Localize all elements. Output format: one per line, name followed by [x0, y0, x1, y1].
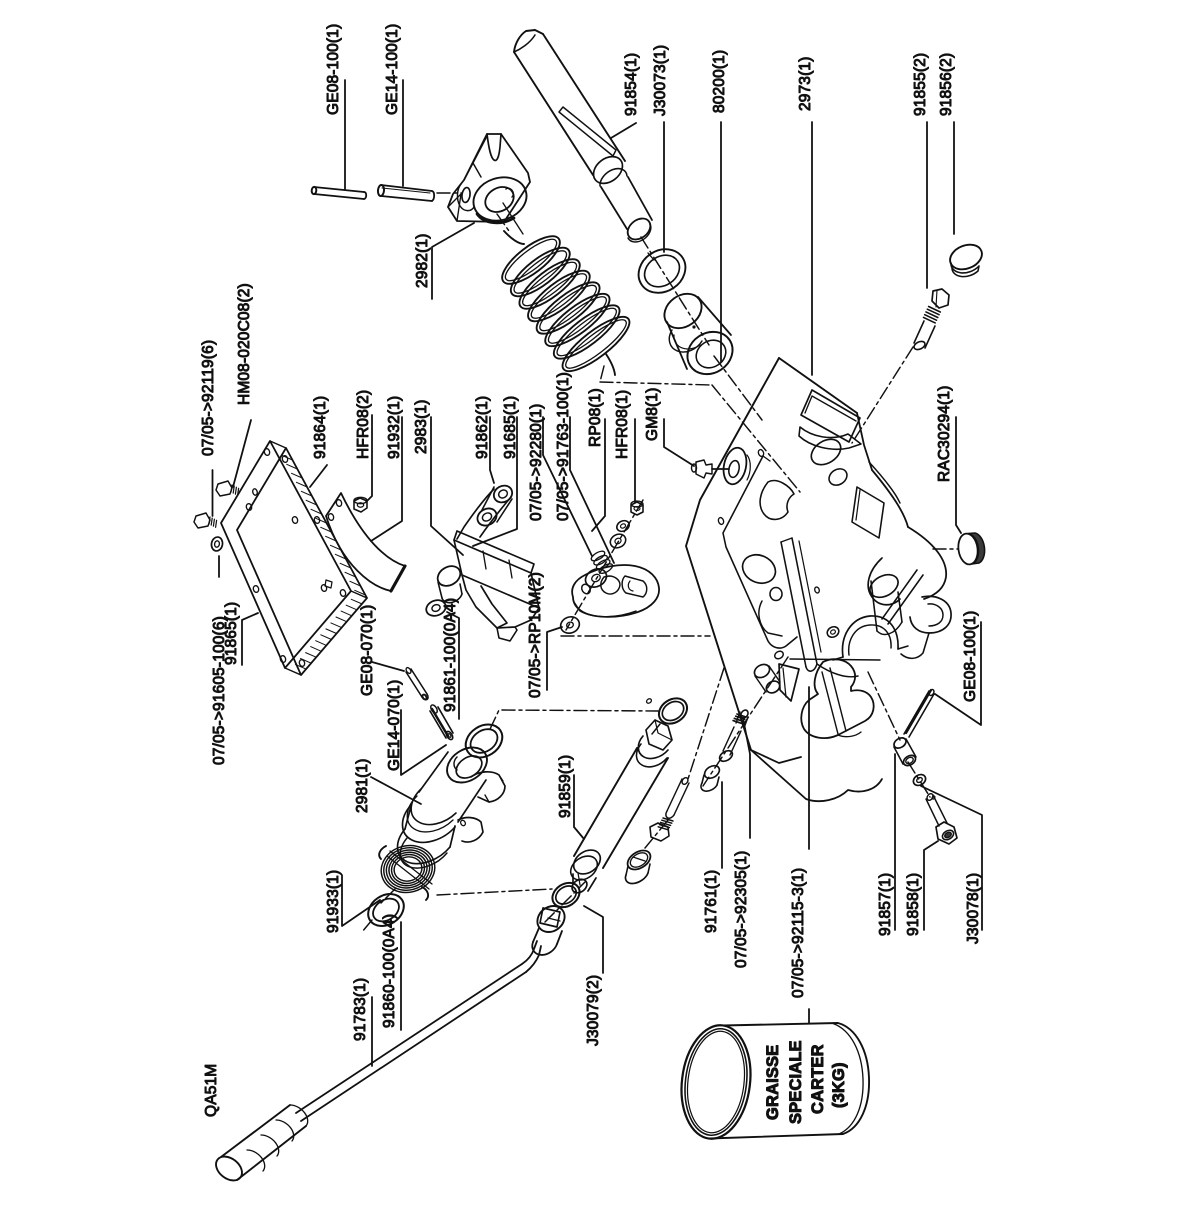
- svg-text:91854(1): 91854(1): [623, 53, 640, 116]
- svg-text:RAC30294(1): RAC30294(1): [936, 386, 953, 482]
- svg-text:91857(1): 91857(1): [877, 873, 894, 936]
- svg-text:GRAISSE: GRAISSE: [764, 1045, 782, 1120]
- svg-text:91859(1): 91859(1): [557, 755, 574, 818]
- svg-text:91761(1): 91761(1): [703, 870, 720, 933]
- svg-text:GM8(1): GM8(1): [644, 388, 661, 441]
- svg-text:91856(2): 91856(2): [938, 53, 955, 116]
- svg-text:J30073(1): J30073(1): [652, 45, 669, 116]
- svg-text:91860-100(0A4): 91860-100(0A4): [381, 914, 398, 1028]
- svg-text:HFR08(2): HFR08(2): [355, 390, 372, 459]
- svg-text:91783(1): 91783(1): [352, 978, 369, 1041]
- svg-text:91861-100(0A4): 91861-100(0A4): [442, 598, 459, 712]
- svg-text:07/05->92119(6): 07/05->92119(6): [200, 340, 217, 456]
- svg-text:91862(1): 91862(1): [474, 396, 491, 459]
- svg-text:91864(1): 91864(1): [312, 396, 329, 459]
- svg-text:SPECIALE: SPECIALE: [787, 1040, 805, 1124]
- svg-text:91932(1): 91932(1): [386, 396, 403, 459]
- svg-text:2981(1): 2981(1): [354, 759, 371, 813]
- svg-text:91855(2): 91855(2): [912, 53, 929, 116]
- svg-text:2983(1): 2983(1): [413, 400, 430, 454]
- svg-text:QA51M: QA51M: [203, 1064, 220, 1117]
- svg-text:91865(1): 91865(1): [223, 602, 240, 665]
- svg-text:J30078(1): J30078(1): [965, 873, 982, 944]
- svg-text:HFR08(1): HFR08(1): [614, 390, 631, 459]
- svg-text:2973(1): 2973(1): [797, 57, 814, 111]
- svg-text:HM08-020C08(2): HM08-020C08(2): [236, 283, 253, 405]
- svg-text:07/05->92305(1): 07/05->92305(1): [733, 851, 750, 968]
- svg-text:GE14-100(1): GE14-100(1): [384, 24, 401, 115]
- svg-text:RP08(1): RP08(1): [587, 388, 604, 447]
- svg-text:80200(1): 80200(1): [711, 50, 728, 113]
- svg-text:CARTER: CARTER: [809, 1044, 827, 1114]
- svg-text:GE08-100(1): GE08-100(1): [962, 611, 979, 702]
- svg-text:(3KG): (3KG): [830, 1062, 848, 1108]
- svg-text:07/05->92115-3(1): 07/05->92115-3(1): [790, 868, 807, 998]
- svg-text:GE08-070(1): GE08-070(1): [359, 605, 376, 696]
- svg-text:91858(1): 91858(1): [905, 873, 922, 936]
- svg-text:J30079(2): J30079(2): [585, 975, 602, 1046]
- svg-text:GE08-100(1): GE08-100(1): [325, 24, 342, 115]
- svg-text:91933(1): 91933(1): [325, 870, 342, 933]
- svg-text:2982(1): 2982(1): [414, 234, 431, 288]
